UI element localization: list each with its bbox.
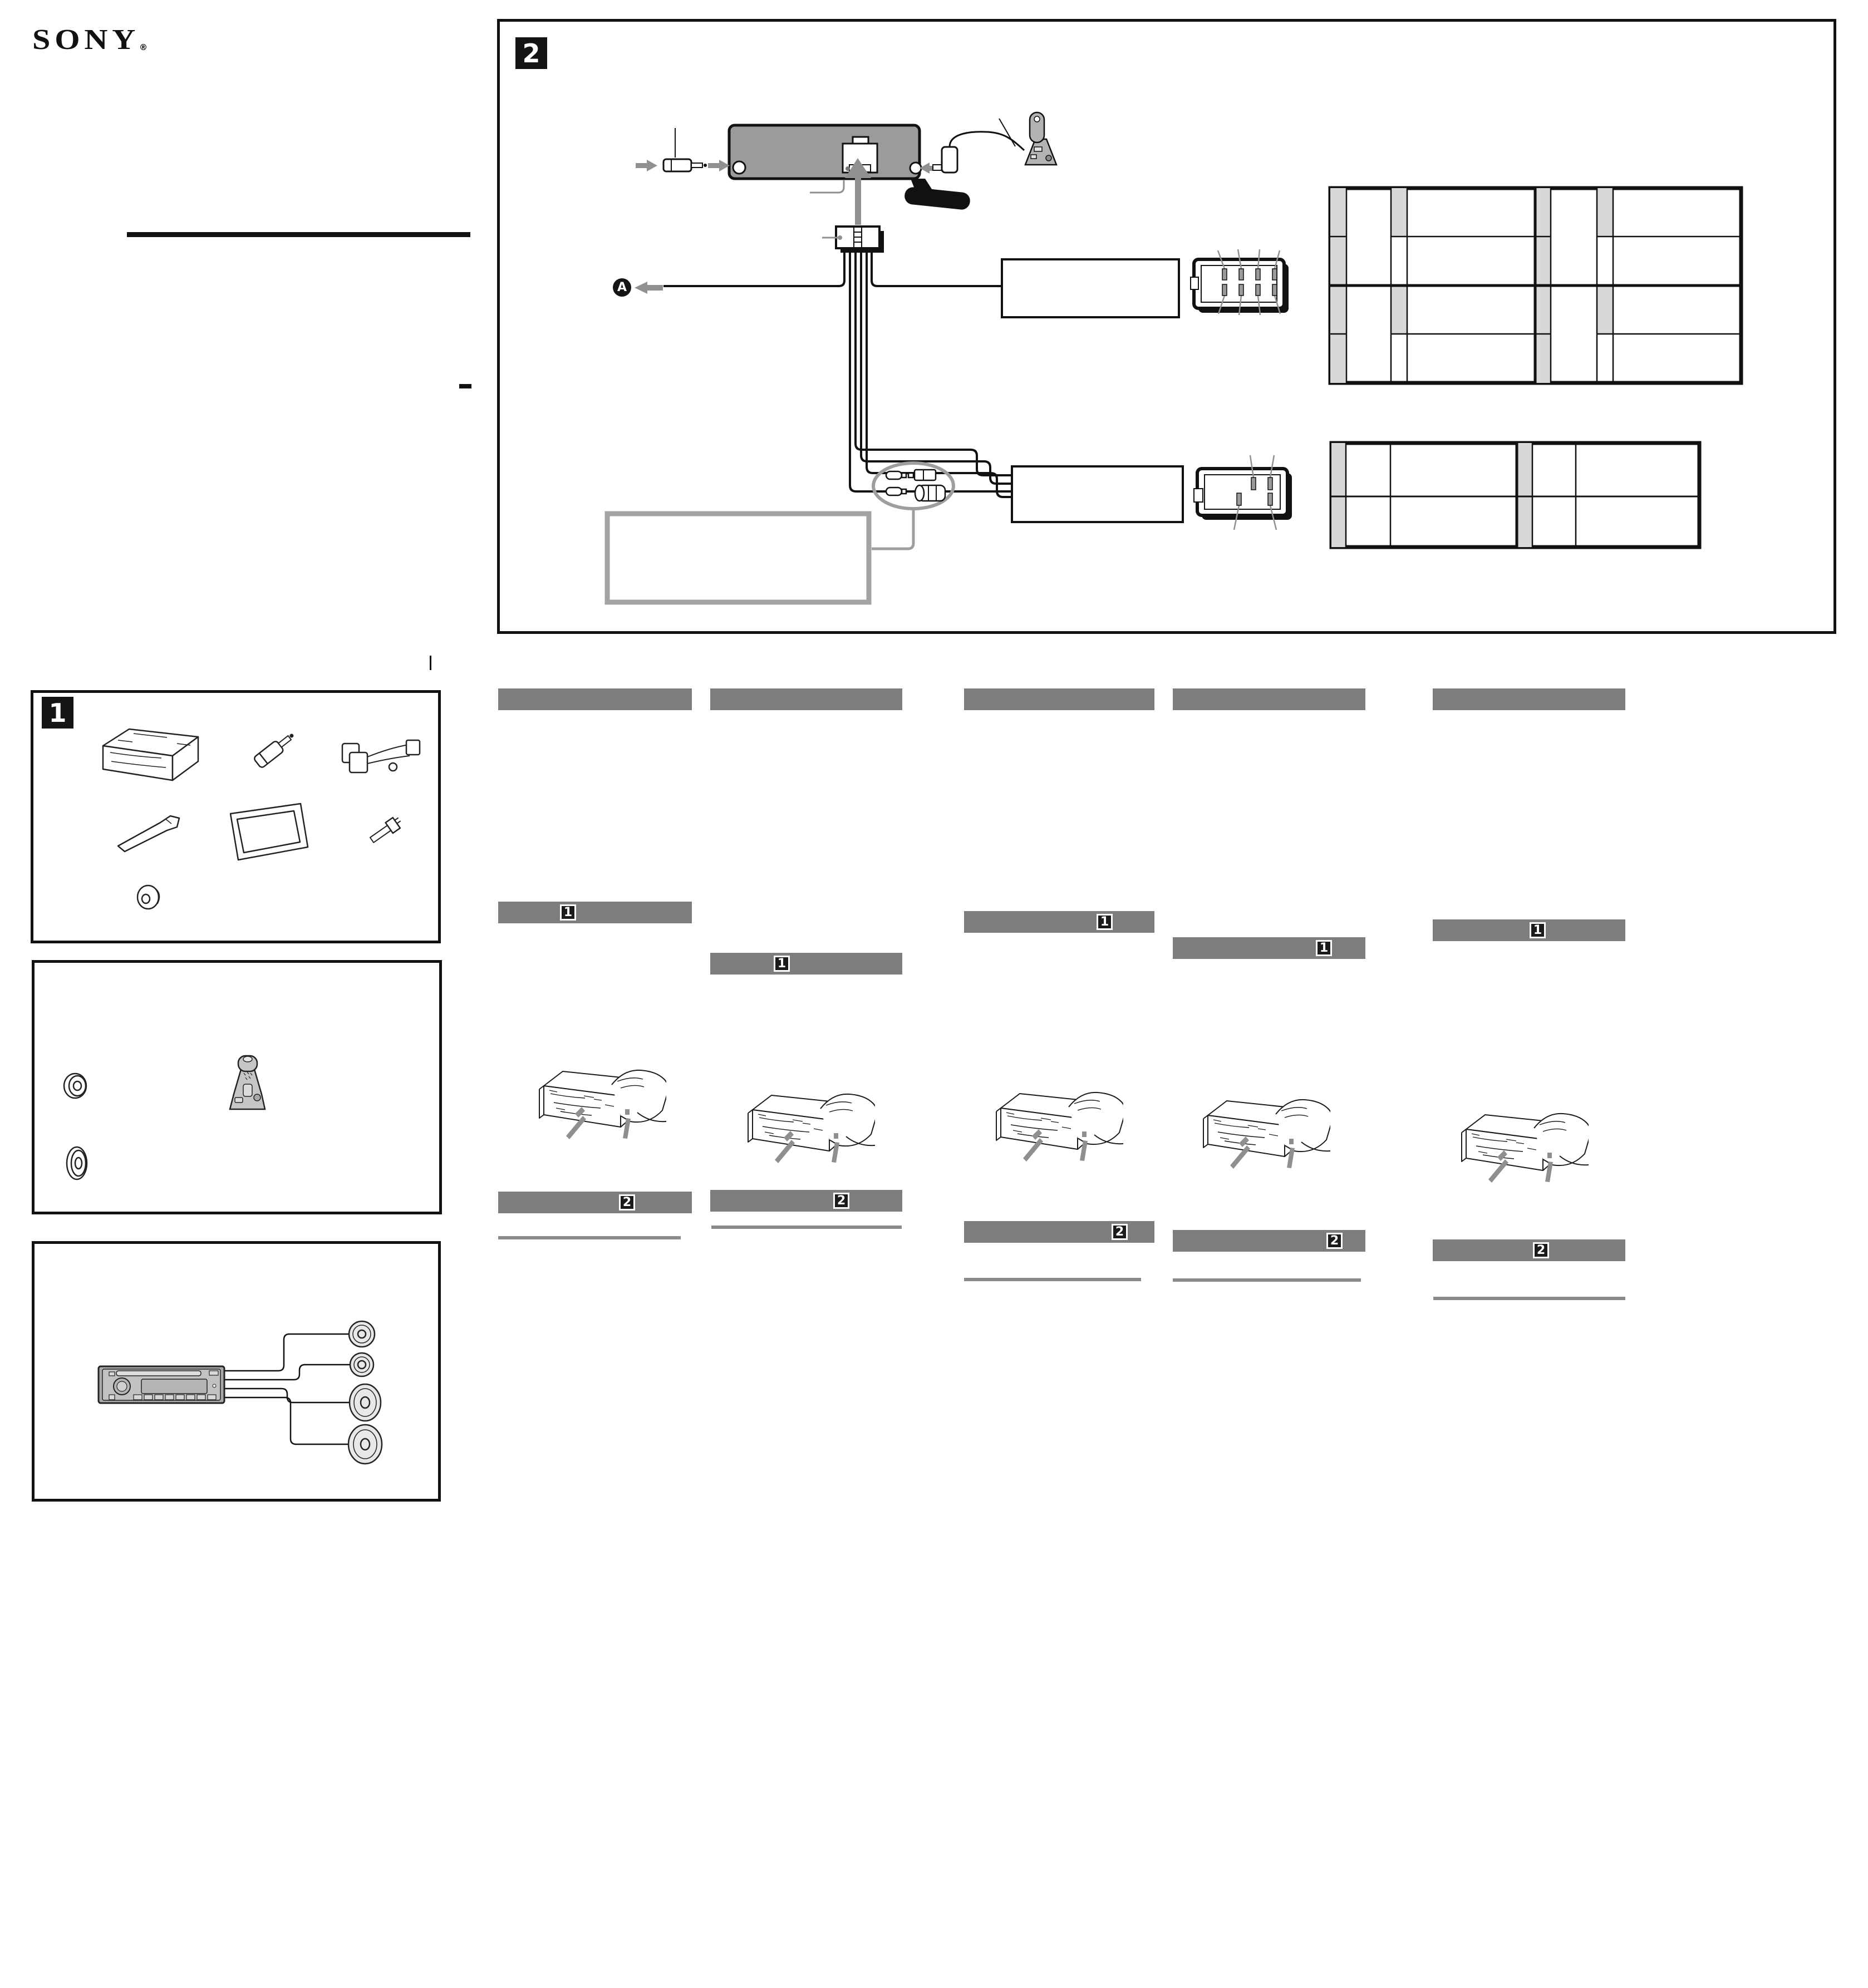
col5-step1-chip: 1 xyxy=(1530,922,1546,938)
antenna-plug-icon xyxy=(636,128,730,171)
harness-adapter-icon xyxy=(342,740,420,772)
sony-logo: SONY xyxy=(32,23,140,56)
col1-step1-bar: 1 xyxy=(498,902,692,923)
head-unit-front-icon xyxy=(99,1366,224,1403)
col3-step2-bar: 2 xyxy=(964,1221,1154,1243)
wire-harness-icon xyxy=(663,248,1014,497)
accessories-badge: 1 xyxy=(42,697,73,729)
col5-rule xyxy=(1433,1297,1625,1300)
connections-badge: 2 xyxy=(515,37,547,69)
col5-header-bar xyxy=(1433,688,1625,710)
col1-step2-chip: 2 xyxy=(619,1194,635,1210)
col2-header-bar xyxy=(710,688,902,710)
col4-step1-bar: 1 xyxy=(1173,937,1365,959)
callout-a-arrow-icon xyxy=(635,282,663,294)
label-box-2 xyxy=(1012,466,1183,522)
col1-step2-bar: 2 xyxy=(498,1192,692,1213)
col4-step-illustration xyxy=(1191,1090,1330,1179)
col3-step2-chip: 2 xyxy=(1112,1224,1128,1240)
speaker-hookup-box xyxy=(32,1241,441,1502)
fold-tick xyxy=(430,656,431,670)
col2-step1-bar: 1 xyxy=(710,953,902,975)
aux-plug-icon xyxy=(920,119,1024,174)
accessories-box: 1 xyxy=(31,690,441,943)
col3-rule xyxy=(964,1278,1141,1281)
microphone-icon xyxy=(1025,112,1056,165)
col4-step1-chip: 1 xyxy=(1316,940,1332,956)
iso-connector-4pin-icon xyxy=(1194,455,1292,530)
speaker-hookup-art xyxy=(32,1241,441,1502)
speaker-small-icon xyxy=(349,1321,375,1347)
col3-step1-chip: 1 xyxy=(1097,914,1113,930)
col2-step1-chip: 1 xyxy=(774,956,790,972)
bullet-plug-icon xyxy=(872,463,953,549)
release-key-icon xyxy=(118,816,179,852)
speaker-oval-icon xyxy=(67,1147,87,1179)
wiring-table-lower xyxy=(1331,443,1699,547)
col5-step2-chip: 2 xyxy=(1533,1242,1549,1258)
label-box-1 xyxy=(1002,259,1179,317)
speaker-small-icon xyxy=(350,1353,373,1376)
fuse-holder-icon xyxy=(822,227,884,253)
mic-parts-art xyxy=(32,960,442,1214)
col5-step1-bar: 1 xyxy=(1433,919,1625,941)
col4-step2-bar: 2 xyxy=(1173,1230,1365,1252)
leader-line xyxy=(810,180,844,193)
col3-header-bar xyxy=(964,688,1154,710)
note-box xyxy=(607,514,869,602)
connections-panel: 2 xyxy=(497,19,1836,634)
head-unit-rear-icon xyxy=(729,125,921,179)
title-rule xyxy=(127,232,470,237)
bolt-icon xyxy=(368,815,404,845)
grommet-icon xyxy=(904,179,971,210)
trim-frame-icon xyxy=(230,804,308,860)
col4-step2-chip: 2 xyxy=(1326,1233,1343,1249)
col3-step1-bar: 1 xyxy=(964,911,1154,933)
speaker-large-icon xyxy=(350,1384,381,1421)
speaker-round-icon xyxy=(64,1074,86,1098)
accessories-art xyxy=(31,690,441,943)
iso-connector-8pin-icon xyxy=(1191,249,1289,315)
col1-step1-chip: 1 xyxy=(560,904,576,921)
col2-step2-chip: 2 xyxy=(833,1193,849,1209)
col2-rule xyxy=(711,1226,902,1229)
speaker-large-icon xyxy=(348,1425,382,1464)
col5-step2-bar: 2 xyxy=(1433,1239,1625,1261)
manual-page: SONY ® xyxy=(0,0,1868,1988)
wiring-diagram xyxy=(497,19,1836,634)
col4-rule xyxy=(1173,1278,1361,1282)
wiring-table-upper xyxy=(1330,188,1741,383)
antenna-adapter-icon xyxy=(253,730,298,769)
col5-step-illustration xyxy=(1449,1104,1589,1193)
col1-header-bar xyxy=(498,688,692,710)
microphone-cone-icon xyxy=(230,1056,265,1109)
fold-dash xyxy=(459,384,471,388)
col2-step-illustration xyxy=(736,1084,875,1173)
callout-a: A xyxy=(613,278,631,297)
col1-rule xyxy=(498,1236,681,1239)
knob-icon xyxy=(137,885,160,909)
registered-mark: ® xyxy=(139,42,148,52)
mounting-sleeve-icon xyxy=(103,729,198,780)
col4-header-bar xyxy=(1173,688,1365,710)
col3-step-illustration xyxy=(984,1082,1123,1172)
mic-parts-box xyxy=(32,960,442,1214)
col2-step2-bar: 2 xyxy=(710,1190,902,1212)
col1-step-illustration xyxy=(527,1060,666,1149)
